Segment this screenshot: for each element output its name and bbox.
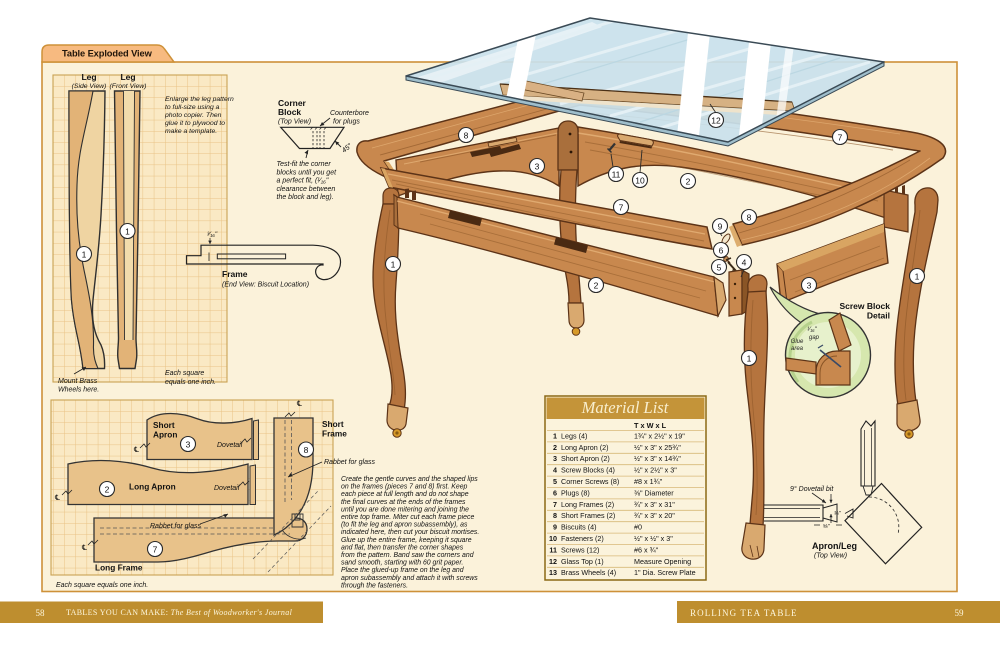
svg-text:Frame: Frame [322, 429, 347, 439]
svg-text:photo copier. Then: photo copier. Then [164, 112, 222, 119]
svg-text:for plugs: for plugs [333, 119, 360, 126]
svg-text:Table Exploded View: Table Exploded View [62, 49, 153, 59]
svg-text:⅜": ⅜" [834, 511, 842, 517]
svg-text:Mount Brass: Mount Brass [58, 378, 98, 385]
svg-text:gap: gap [809, 335, 820, 341]
svg-text:indicated here, then cut your: indicated here, then cut your biscuit mo… [341, 529, 479, 536]
svg-text:8: 8 [464, 130, 469, 140]
svg-text:T x W x L: T x W x L [634, 421, 667, 430]
svg-text:¹⁄₁₆": ¹⁄₁₆" [807, 327, 817, 333]
svg-text:Wheels here.: Wheels here. [58, 387, 99, 394]
svg-text:1: 1 [553, 431, 557, 440]
svg-text:Block: Block [278, 107, 301, 117]
svg-text:6: 6 [553, 488, 557, 497]
svg-text:2: 2 [594, 280, 599, 290]
svg-text:clearance between: clearance between [277, 186, 336, 193]
svg-text:2: 2 [553, 443, 557, 452]
svg-text:#6 x ¾": #6 x ¾" [634, 545, 659, 554]
svg-text:12: 12 [711, 115, 721, 125]
svg-text:Dovetail: Dovetail [214, 485, 240, 492]
svg-text:Legs (4): Legs (4) [561, 431, 587, 440]
svg-text:7: 7 [153, 544, 158, 554]
svg-text:¾" x 3" x 31": ¾" x 3" x 31" [634, 500, 675, 509]
svg-text:Corner Screws (8): Corner Screws (8) [561, 477, 619, 486]
svg-text:3: 3 [535, 161, 540, 171]
svg-text:9: 9 [553, 523, 557, 532]
svg-text:Short: Short [322, 419, 344, 429]
svg-text:entire top frame. Miter cut ea: entire top frame. Miter cut each frame p… [341, 514, 474, 521]
svg-text:Apron/Leg: Apron/Leg [812, 541, 857, 551]
svg-text:6: 6 [719, 245, 724, 255]
svg-text:Leg: Leg [120, 72, 135, 82]
svg-text:59: 59 [955, 608, 965, 618]
svg-text:58: 58 [36, 608, 46, 618]
svg-text:Short Frames (2): Short Frames (2) [561, 511, 615, 520]
svg-text:each piece at full length and: each piece at full length and do not sha… [341, 491, 469, 498]
svg-text:Glue: Glue [791, 339, 804, 345]
svg-text:Detail: Detail [867, 311, 890, 321]
svg-text:8: 8 [747, 212, 752, 222]
svg-text:7: 7 [553, 500, 557, 509]
svg-text:(End View: Biscuit Location): (End View: Biscuit Location) [222, 282, 309, 289]
svg-text:8: 8 [553, 511, 557, 520]
svg-text:Each square equals one inch.: Each square equals one inch. [56, 582, 148, 589]
svg-text:(Top View): (Top View) [814, 553, 847, 560]
svg-text:Screws (12): Screws (12) [561, 545, 599, 554]
svg-text:13: 13 [549, 568, 557, 577]
svg-text:3: 3 [186, 439, 191, 449]
svg-text:ROLLING TEA TABLE: ROLLING TEA TABLE [690, 608, 798, 618]
svg-text:Dovetail: Dovetail [217, 442, 243, 449]
svg-text:Short: Short [153, 420, 175, 430]
svg-text:1" Dia. Screw Plate: 1" Dia. Screw Plate [634, 568, 696, 577]
svg-text:1: 1 [747, 353, 752, 363]
svg-text:11: 11 [612, 169, 621, 179]
svg-text:Long Frames (2): Long Frames (2) [561, 500, 614, 509]
svg-text:Create the gentle curves and t: Create the gentle curves and the shaped … [341, 476, 478, 483]
svg-text:Short Apron (2): Short Apron (2) [561, 454, 610, 463]
svg-text:10: 10 [635, 175, 645, 185]
svg-text:from the pattern. Band saw the: from the pattern. Band saw the corners a… [341, 552, 475, 559]
svg-text:#0: #0 [634, 523, 642, 532]
svg-text:Test-fit the corner: Test-fit the corner [277, 161, 332, 168]
svg-text:½" x 3" x 25¾": ½" x 3" x 25¾" [634, 443, 681, 452]
svg-text:3: 3 [553, 454, 557, 463]
svg-text:4: 4 [553, 466, 557, 475]
svg-text:⅜" Diameter: ⅜" Diameter [634, 488, 674, 497]
svg-text:2: 2 [105, 484, 110, 494]
svg-text:10: 10 [549, 534, 557, 543]
svg-text:Counterbore: Counterbore [330, 110, 369, 117]
svg-text:Measure Opening: Measure Opening [634, 557, 691, 566]
svg-text:Glass Top (1): Glass Top (1) [561, 557, 604, 566]
svg-text:2: 2 [686, 176, 691, 186]
svg-text:½" x 3" x 14¾": ½" x 3" x 14¾" [634, 454, 681, 463]
svg-text:³⁄₁₆": ³⁄₁₆" [207, 231, 218, 238]
svg-text:(Top View): (Top View) [278, 119, 311, 126]
svg-text:(to fit the leg and apron suba: (to fit the leg and apron subassembly), … [341, 522, 468, 529]
svg-text:Biscuits (4): Biscuits (4) [561, 523, 597, 532]
svg-text:⅝": ⅝" [823, 524, 831, 530]
svg-text:3: 3 [807, 280, 812, 290]
svg-text:Fasteners (2): Fasteners (2) [561, 534, 604, 543]
svg-text:until you are done mitering an: until you are done mitering and joining … [341, 506, 469, 513]
svg-text:apron subassembly and attach i: apron subassembly and attach it with scr… [341, 575, 478, 582]
svg-text:Long Apron (2): Long Apron (2) [561, 443, 609, 452]
svg-text:Long Apron: Long Apron [129, 482, 176, 492]
svg-text:1: 1 [391, 259, 396, 269]
svg-text:9: 9 [718, 221, 723, 231]
svg-text:Frame: Frame [222, 269, 248, 279]
svg-text:5: 5 [553, 477, 557, 486]
svg-text:#8 x 1¾": #8 x 1¾" [634, 477, 663, 486]
svg-text:¾" x 3" x 20": ¾" x 3" x 20" [634, 511, 675, 520]
svg-text:1: 1 [125, 226, 130, 236]
svg-text:Rabbet for glass: Rabbet for glass [324, 459, 375, 466]
svg-text:and flat, then transfer the co: and flat, then transfer the corner shape… [341, 544, 464, 551]
svg-text:Apron: Apron [153, 430, 177, 440]
svg-text:Leg: Leg [81, 72, 96, 82]
svg-text:Glue up the entire frame, keep: Glue up the entire frame, keeping it squ… [341, 537, 472, 544]
svg-text:8: 8 [304, 445, 309, 455]
svg-text:9° Dovetail bit: 9° Dovetail bit [790, 485, 834, 493]
svg-text:Place the glued-up frame on th: Place the glued-up frame on the leg and [341, 567, 465, 574]
svg-text:glue it to plywood to: glue it to plywood to [165, 120, 225, 127]
svg-text:through the fasteners.: through the fasteners. [341, 582, 408, 589]
svg-text:Screw Blocks (4): Screw Blocks (4) [561, 466, 615, 475]
svg-text:Brass Wheels (4): Brass Wheels (4) [561, 568, 616, 577]
svg-text:1¾" x 2½" x 19": 1¾" x 2½" x 19" [634, 431, 685, 440]
svg-text:½" x 2½" x 3": ½" x 2½" x 3" [634, 466, 677, 475]
svg-text:TABLES YOU CAN MAKE: The Best: TABLES YOU CAN MAKE: The Best of Woodwor… [66, 608, 293, 617]
svg-text:12: 12 [549, 557, 557, 566]
svg-text:to full-size using a: to full-size using a [165, 104, 220, 111]
svg-text:Rabbet for glass: Rabbet for glass [150, 523, 201, 530]
svg-text:Material List: Material List [581, 398, 669, 417]
svg-text:a perfect fit, (¹⁄₁₆": a perfect fit, (¹⁄₁₆" [277, 178, 329, 185]
svg-text:(Side View): (Side View) [72, 83, 107, 90]
svg-text:the block and leg).: the block and leg). [277, 194, 334, 201]
svg-text:area: area [791, 346, 804, 352]
svg-text:the final curves at the ends o: the final curves at the ends of the fram… [341, 499, 466, 506]
svg-text:4: 4 [742, 257, 747, 267]
svg-text:make a template.: make a template. [165, 128, 217, 135]
svg-text:Enlarge the leg pattern: Enlarge the leg pattern [165, 96, 234, 103]
svg-text:11: 11 [549, 545, 557, 554]
svg-text:Each square: Each square [165, 370, 204, 377]
svg-text:on the frames (pieces 7 and 8): on the frames (pieces 7 and 8) first. Ke… [341, 484, 468, 491]
svg-text:blocks until you get: blocks until you get [277, 169, 338, 176]
svg-text:(Front View): (Front View) [110, 83, 147, 90]
svg-text:Screw Block: Screw Block [839, 301, 890, 311]
svg-text:7: 7 [838, 132, 843, 142]
svg-text:Long Frame: Long Frame [95, 563, 143, 573]
svg-text:½" x ½" x 3": ½" x ½" x 3" [634, 534, 673, 543]
svg-text:1: 1 [915, 271, 920, 281]
svg-text:7: 7 [619, 202, 624, 212]
svg-text:Plugs (8): Plugs (8) [561, 488, 590, 497]
svg-text:1: 1 [82, 249, 87, 259]
svg-text:equals one inch.: equals one inch. [165, 379, 216, 386]
svg-text:5: 5 [717, 262, 722, 272]
svg-text:sand smooth, starting with 60: sand smooth, starting with 60 grit paper… [341, 560, 463, 567]
